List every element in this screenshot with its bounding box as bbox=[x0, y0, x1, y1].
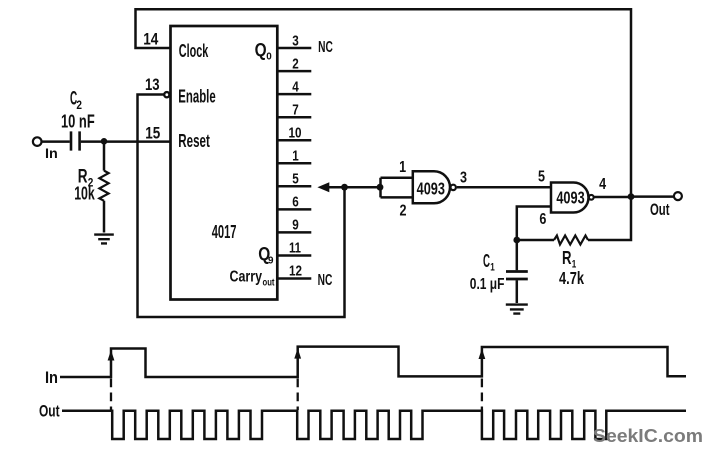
svg-text:4: 4 bbox=[292, 78, 299, 95]
svg-text:9: 9 bbox=[268, 255, 274, 267]
svg-text:11: 11 bbox=[289, 240, 301, 257]
svg-text:Clock: Clock bbox=[179, 41, 209, 61]
svg-text:Q: Q bbox=[255, 40, 267, 60]
svg-text:14: 14 bbox=[143, 29, 159, 48]
svg-text:6: 6 bbox=[539, 211, 546, 228]
svg-text:3: 3 bbox=[292, 32, 299, 49]
svg-text:2: 2 bbox=[76, 100, 82, 112]
svg-text:12: 12 bbox=[289, 263, 302, 280]
svg-text:3: 3 bbox=[460, 170, 467, 187]
svg-text:10: 10 bbox=[289, 124, 302, 141]
svg-text:Carry: Carry bbox=[230, 269, 263, 286]
svg-text:Out: Out bbox=[39, 403, 60, 421]
svg-text:2: 2 bbox=[400, 202, 407, 219]
svg-text:NC: NC bbox=[318, 272, 333, 289]
svg-text:2: 2 bbox=[292, 55, 299, 72]
svg-text:out: out bbox=[263, 276, 275, 288]
svg-text:4: 4 bbox=[599, 176, 606, 193]
svg-text:1: 1 bbox=[399, 159, 406, 176]
svg-text:R: R bbox=[562, 248, 572, 268]
svg-text:C: C bbox=[483, 250, 490, 271]
svg-text:Enable: Enable bbox=[178, 87, 215, 107]
svg-text:6: 6 bbox=[292, 194, 299, 211]
svg-text:4.7k: 4.7k bbox=[559, 268, 584, 288]
svg-text:10k: 10k bbox=[74, 184, 95, 204]
svg-text:4093: 4093 bbox=[556, 188, 584, 208]
svg-text:13: 13 bbox=[145, 75, 160, 94]
svg-text:5: 5 bbox=[538, 169, 545, 186]
svg-text:In: In bbox=[45, 369, 58, 387]
svg-text:0.1 μF: 0.1 μF bbox=[470, 276, 505, 293]
svg-text:Out: Out bbox=[650, 201, 670, 219]
svg-text:10 nF: 10 nF bbox=[61, 112, 95, 132]
svg-text:In: In bbox=[45, 145, 58, 161]
svg-text:4017: 4017 bbox=[212, 222, 237, 242]
svg-text:1: 1 bbox=[292, 148, 299, 165]
svg-text:5: 5 bbox=[292, 171, 299, 188]
svg-text:15: 15 bbox=[145, 124, 160, 143]
svg-text:SeekIC.com: SeekIC.com bbox=[593, 425, 703, 446]
svg-text:NC: NC bbox=[318, 39, 333, 56]
svg-text:4093: 4093 bbox=[417, 179, 445, 199]
svg-text:Reset: Reset bbox=[178, 131, 210, 151]
svg-text:0: 0 bbox=[266, 51, 272, 63]
svg-text:9: 9 bbox=[292, 217, 299, 234]
svg-text:1: 1 bbox=[490, 262, 495, 274]
svg-text:7: 7 bbox=[292, 101, 299, 118]
